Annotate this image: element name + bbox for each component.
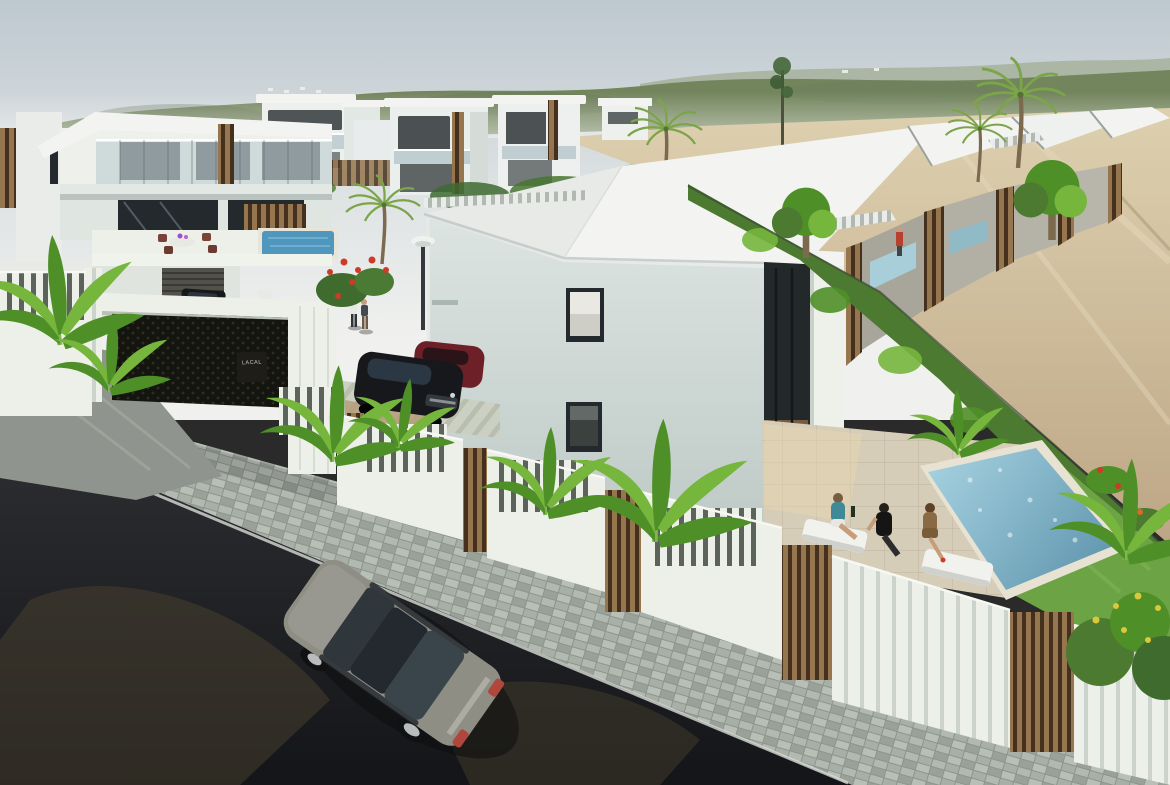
window-upper — [566, 288, 604, 342]
wine-bottle — [851, 506, 855, 517]
villa-a-roof — [256, 94, 356, 103]
render-canvas: LACAL — [0, 0, 1170, 785]
left-villa-balcony-glass — [96, 140, 332, 184]
render-frame: LACAL — [0, 0, 1170, 785]
window-lower — [566, 402, 602, 452]
gate-sign-text: LACAL — [242, 360, 262, 367]
vent-strip — [432, 300, 458, 305]
bg-villa-1-wood-column — [452, 112, 464, 194]
bg-villa-2 — [492, 95, 586, 190]
left-wood-wall — [0, 128, 16, 208]
bg-villa-1 — [384, 98, 494, 195]
gate-name-sign: LACAL — [237, 351, 268, 382]
left-pool — [262, 231, 334, 256]
pool-slat-fence — [244, 204, 306, 230]
